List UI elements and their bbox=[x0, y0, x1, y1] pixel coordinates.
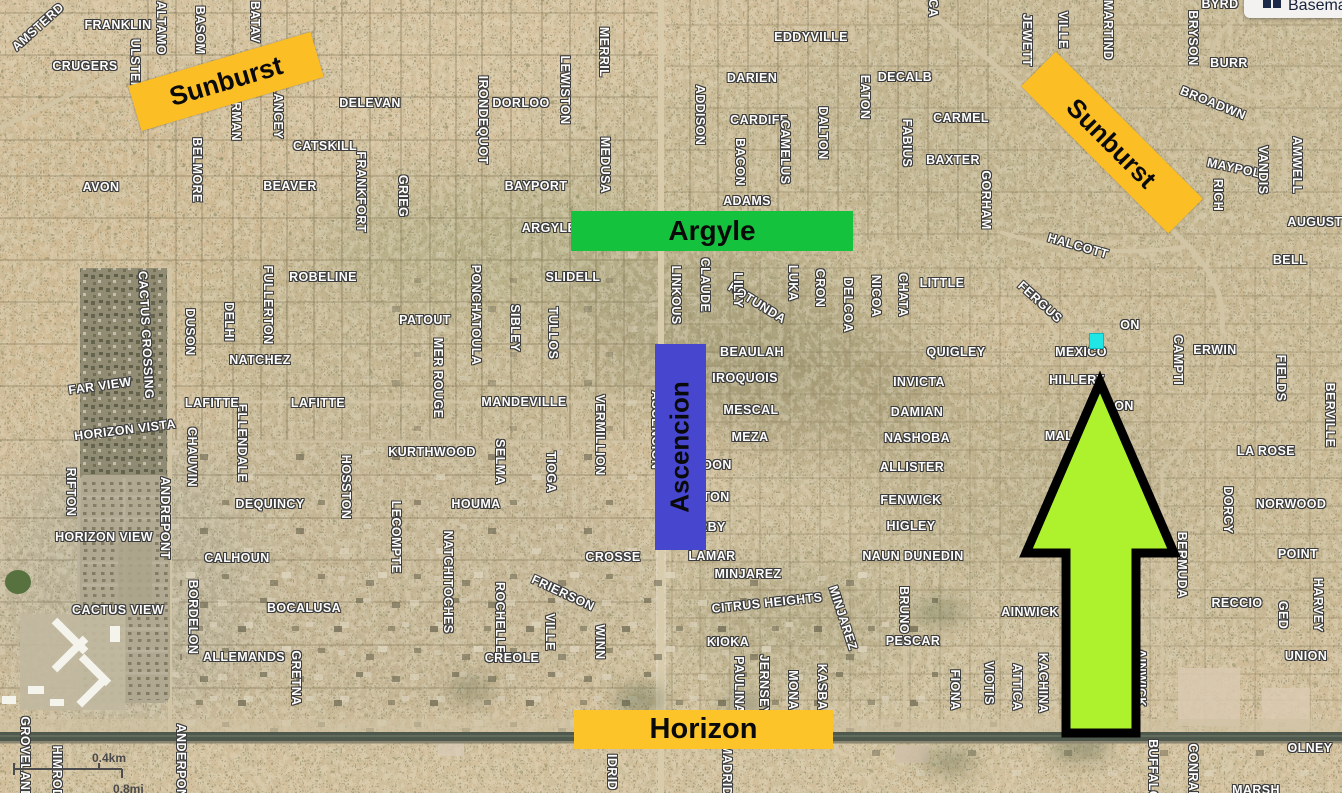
svg-text:0.8mi: 0.8mi bbox=[113, 782, 144, 793]
svg-text:0.4km: 0.4km bbox=[92, 751, 126, 765]
